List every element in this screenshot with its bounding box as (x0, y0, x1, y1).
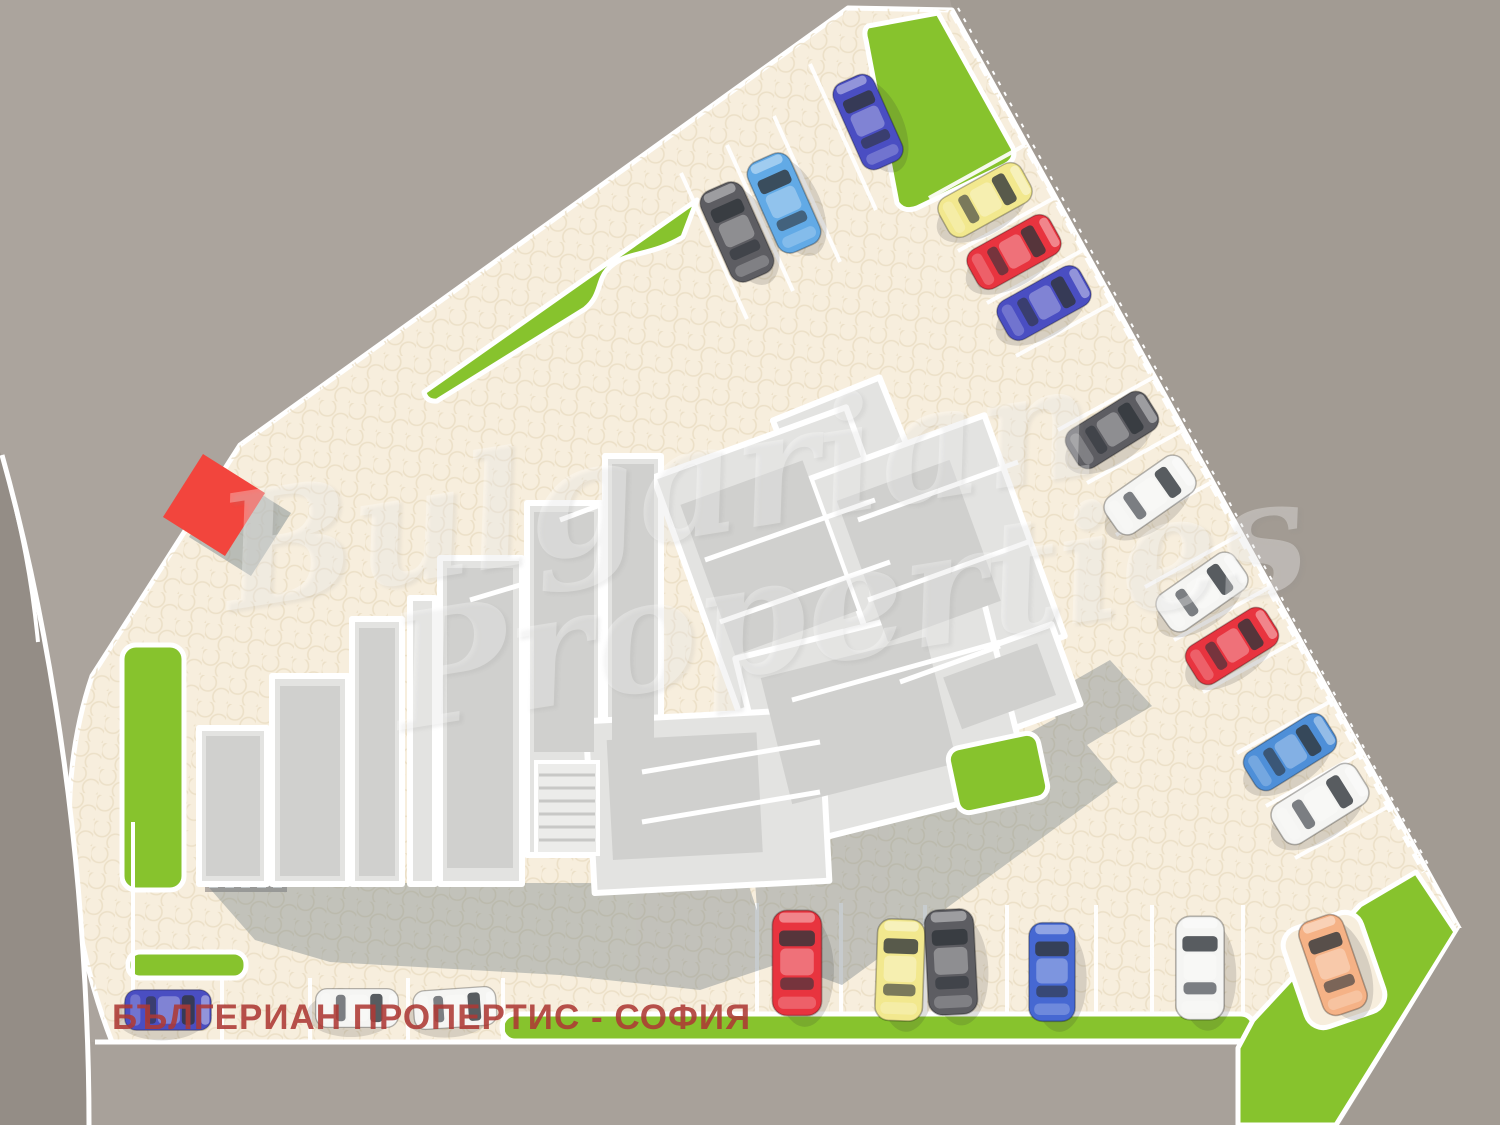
car-roof (933, 947, 968, 976)
car-roof (780, 948, 814, 975)
car-trunk (1034, 1004, 1070, 1016)
car-hood (1035, 925, 1069, 934)
car-windshield (1182, 936, 1217, 951)
car-windshield (779, 931, 815, 947)
site-plan-render: Bulgarian Properties БЪЛГЕРИАН ПРОПЕРТИС… (0, 0, 1500, 1125)
car-windshield (931, 929, 968, 947)
car-hood (1182, 919, 1217, 929)
site-plan-svg (0, 0, 1500, 1125)
car-trunk (934, 995, 973, 1009)
car-windshield (883, 938, 918, 954)
car-rear-window (883, 983, 916, 996)
car-trunk (880, 1002, 917, 1015)
agency-caption: БЪЛГЕРИАН ПРОПЕРТИС - СОФИЯ (112, 998, 751, 1038)
car-trunk (1181, 1001, 1218, 1013)
car-roof (1184, 954, 1217, 980)
stairwell (536, 762, 598, 854)
car-hood (884, 921, 919, 932)
car-rear-window (780, 978, 814, 990)
car-roof (1036, 958, 1068, 983)
car-rear-window (935, 976, 969, 990)
car-hood (779, 913, 815, 923)
grass-small-bar (128, 952, 246, 978)
car-trunk (778, 997, 816, 1009)
car-windshield (1035, 942, 1069, 957)
car-roof (883, 955, 916, 982)
car-rear-window (1036, 986, 1068, 998)
car-hood (930, 911, 966, 923)
car-rear-window (1184, 982, 1217, 994)
